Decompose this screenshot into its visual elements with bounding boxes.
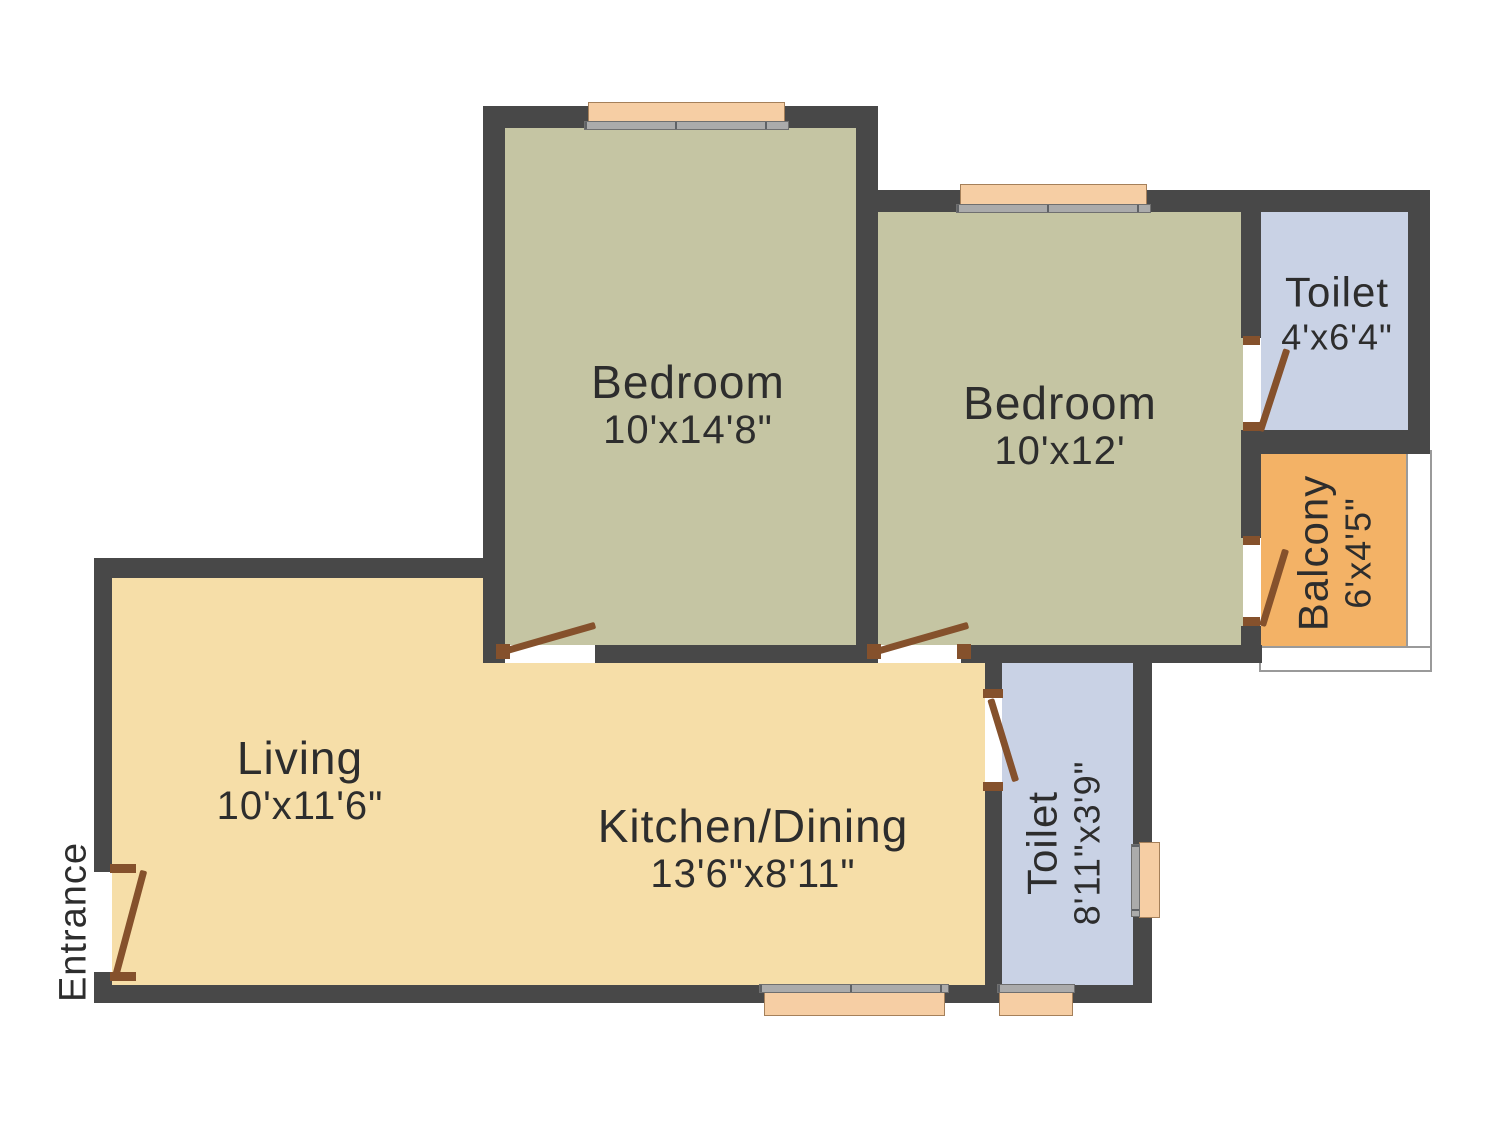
window-sill bbox=[1131, 844, 1140, 917]
balcony-label: Balcony 6'x4'5" bbox=[1290, 475, 1379, 631]
living-label: Living 10'x11'6" bbox=[217, 732, 384, 830]
balcony-name: Balcony bbox=[1290, 475, 1338, 631]
bedroom-1-label: Bedroom 10'x14'8" bbox=[591, 356, 785, 454]
toilet-top-dims: 4'x6'4" bbox=[1281, 316, 1393, 357]
kitchen-dining-label: Kitchen/Dining 13'6"x8'11" bbox=[598, 800, 909, 898]
window-sill bbox=[759, 984, 949, 993]
wall-segment bbox=[483, 106, 505, 663]
bedroom-2-dims: 10'x12' bbox=[963, 429, 1157, 475]
wall-segment bbox=[1241, 454, 1261, 538]
window-sill bbox=[997, 984, 1075, 993]
living-dims: 10'x11'6" bbox=[217, 784, 384, 830]
balcony-railing-bottom bbox=[1259, 646, 1432, 672]
bedroom-2-name: Bedroom bbox=[963, 377, 1157, 429]
toilet-top-label: Toilet 4'x6'4" bbox=[1281, 269, 1393, 358]
window-sill bbox=[584, 121, 789, 130]
door-jamb bbox=[957, 644, 971, 659]
kitchen-dining-dims: 13'6"x8'11" bbox=[598, 852, 909, 898]
door-jamb bbox=[983, 782, 1003, 791]
wall-segment bbox=[961, 645, 1262, 663]
wall-segment bbox=[1133, 663, 1152, 985]
floor-plan: Bedroom 10'x14'8" Bedroom 10'x12' Toilet… bbox=[0, 0, 1500, 1125]
toilet-bottom-name: Toilet bbox=[1019, 761, 1067, 926]
wall-segment bbox=[1241, 212, 1261, 338]
balcony-dims: 6'x4'5" bbox=[1337, 475, 1378, 631]
bedroom-2-label: Bedroom 10'x12' bbox=[963, 377, 1157, 475]
toilet-bottom-label: Toilet 8'11"x3'9" bbox=[1019, 761, 1108, 926]
window-toilet-bottom bbox=[999, 992, 1073, 1016]
wall-segment bbox=[985, 788, 1002, 985]
window-bedroom-2 bbox=[960, 184, 1147, 206]
door-jamb bbox=[1243, 336, 1260, 345]
wall-segment bbox=[94, 558, 112, 872]
wall-segment bbox=[1408, 190, 1430, 454]
door-jamb bbox=[1243, 617, 1260, 626]
kitchen-dining-name: Kitchen/Dining bbox=[598, 800, 909, 852]
wall-segment bbox=[94, 558, 485, 578]
toilet-bottom-dims: 8'11"x3'9" bbox=[1066, 761, 1107, 926]
door-jamb bbox=[983, 689, 1003, 698]
wall-segment bbox=[1241, 430, 1430, 454]
window-kitchen bbox=[764, 992, 945, 1016]
living-name: Living bbox=[217, 732, 384, 784]
entrance-label: Entrance bbox=[53, 842, 96, 1002]
wall-segment bbox=[985, 663, 1002, 692]
window-toilet-bottom-side bbox=[1139, 842, 1160, 918]
balcony-railing-right bbox=[1406, 450, 1432, 672]
wall-segment bbox=[94, 985, 1152, 1003]
toilet-top-name: Toilet bbox=[1281, 269, 1393, 317]
bedroom-1-dims: 10'x14'8" bbox=[591, 408, 785, 454]
wall-segment bbox=[595, 645, 877, 663]
window-sill bbox=[956, 204, 1151, 213]
door-jamb bbox=[1243, 536, 1260, 545]
door-jamb bbox=[110, 864, 136, 873]
bedroom-1-name: Bedroom bbox=[591, 356, 785, 408]
